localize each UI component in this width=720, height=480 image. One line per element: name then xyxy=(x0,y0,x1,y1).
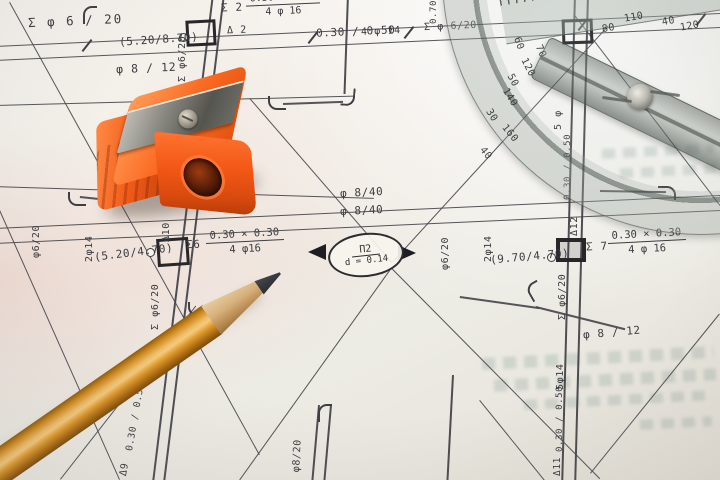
photo-of-technical-drawing: Σ φ 6 / 20 Σ 2 0.30 × 0.30 4 φ 16 Δ 2 0.… xyxy=(0,0,720,480)
photo-vignette xyxy=(0,0,720,480)
